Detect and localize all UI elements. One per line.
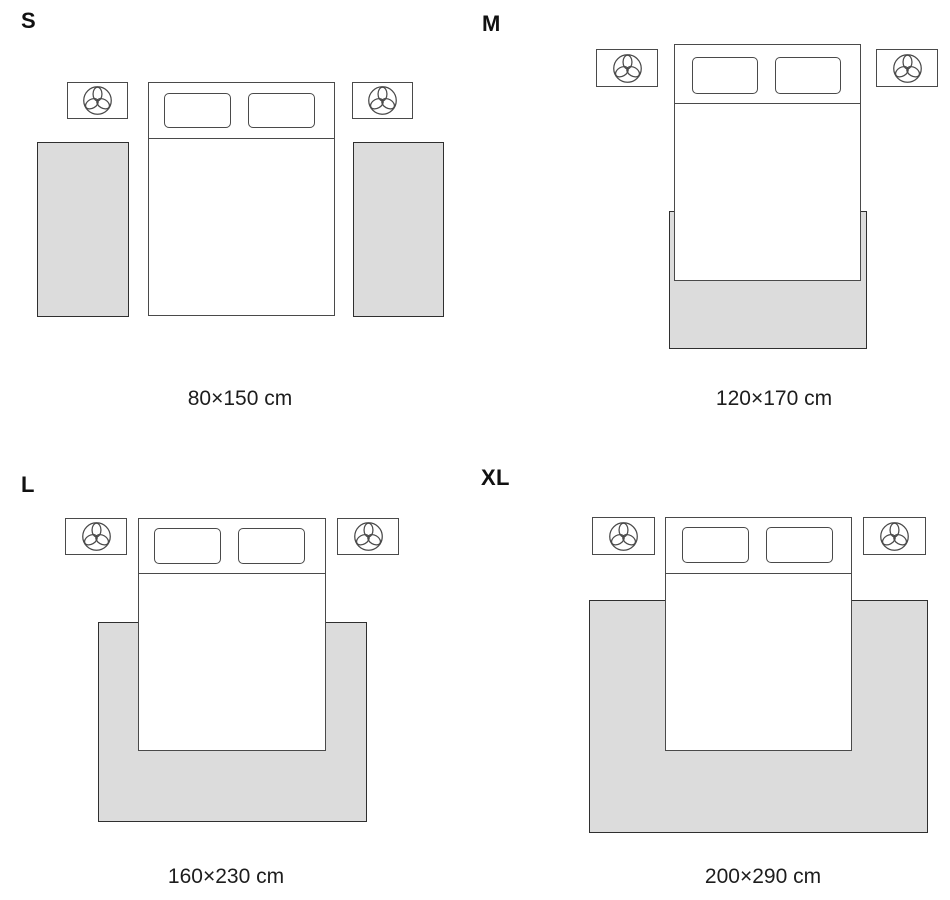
plant-icon	[892, 53, 923, 84]
nightstand-left	[67, 82, 128, 119]
nightstand-right	[337, 518, 399, 555]
nightstand-right	[863, 517, 926, 555]
pillow-right	[775, 57, 841, 94]
bed	[674, 44, 861, 281]
nightstand-left	[65, 518, 127, 555]
pillow-right	[766, 527, 833, 563]
size-variant-s: S	[0, 0, 475, 450]
size-caption: 160×230 cm	[168, 864, 284, 889]
headboard	[149, 83, 334, 139]
pillow-left	[154, 528, 221, 564]
size-label: S	[21, 10, 36, 32]
size-variant-l: L	[0, 450, 475, 900]
pillow-right	[238, 528, 305, 564]
size-caption: 80×150 cm	[188, 386, 293, 411]
plant-icon	[879, 521, 910, 552]
plant-icon	[81, 521, 112, 552]
nightstand-right	[352, 82, 413, 119]
bed	[148, 82, 335, 316]
pillow-left	[692, 57, 758, 94]
plant-icon	[367, 85, 398, 116]
pillow-right	[248, 93, 315, 128]
pillow-left	[164, 93, 231, 128]
nightstand-left	[592, 517, 655, 555]
size-label: XL	[481, 467, 510, 489]
pillow-left	[682, 527, 749, 563]
rug-size-guide: S	[0, 0, 950, 900]
nightstand-left	[596, 49, 658, 87]
bed	[138, 518, 326, 751]
plant-icon	[353, 521, 384, 552]
headboard	[675, 45, 860, 104]
size-variant-m: M	[475, 0, 950, 450]
rug-left-runner	[37, 142, 129, 317]
size-label: L	[21, 474, 35, 496]
plant-icon	[82, 85, 113, 116]
size-caption: 120×170 cm	[716, 386, 832, 411]
plant-icon	[608, 521, 639, 552]
size-variant-xl: XL	[475, 450, 950, 900]
plant-icon	[612, 53, 643, 84]
headboard	[666, 518, 851, 574]
size-caption: 200×290 cm	[705, 864, 821, 889]
bed	[665, 517, 852, 751]
size-label: M	[482, 13, 501, 35]
nightstand-right	[876, 49, 938, 87]
rug-right-runner	[353, 142, 444, 317]
headboard	[139, 519, 325, 574]
